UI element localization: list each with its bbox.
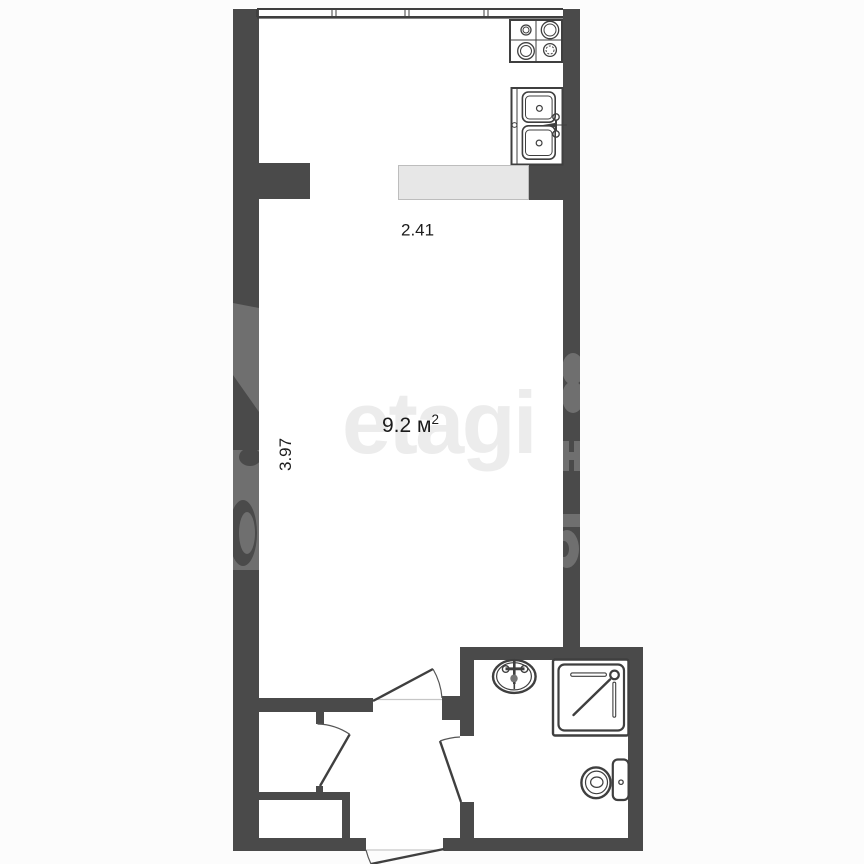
svg-text:9.2 м2: 9.2 м2 bbox=[382, 412, 439, 437]
svg-text:2.41: 2.41 bbox=[401, 221, 434, 240]
svg-text:3.97: 3.97 bbox=[276, 438, 295, 471]
